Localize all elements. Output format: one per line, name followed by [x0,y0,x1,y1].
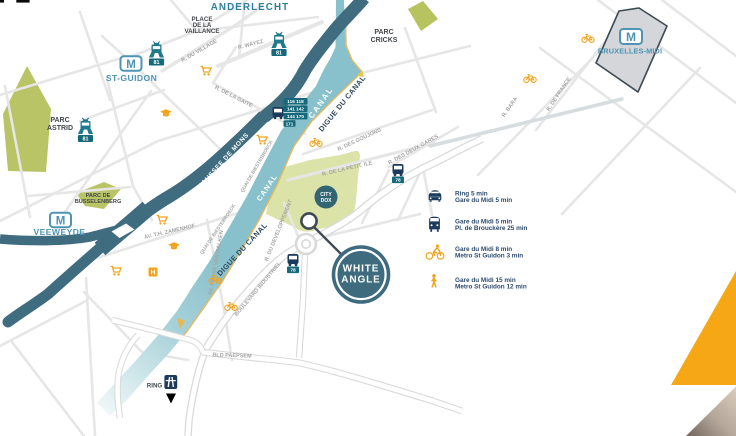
svg-text:ANDERLECHT: ANDERLECHT [211,2,290,13]
svg-text:ANGLE: ANGLE [341,275,381,286]
svg-text:Metro St Guidon 12 min: Metro St Guidon 12 min [455,284,527,291]
svg-text:81: 81 [276,50,282,56]
svg-text:141 142: 141 142 [287,107,304,112]
svg-text:81: 81 [83,136,89,142]
svg-text:Metro St Guidon 3 min: Metro St Guidon 3 min [455,253,523,260]
svg-text:116 118: 116 118 [287,99,304,104]
svg-text:M: M [126,59,136,71]
svg-text:M: M [626,30,636,44]
svg-text:PARC: PARC [374,29,393,36]
svg-text:H: H [150,270,155,277]
svg-text:WHITE: WHITE [343,264,380,275]
svg-text:M: M [56,215,66,227]
svg-text:144 170: 144 170 [287,114,304,119]
svg-text:78: 78 [395,178,401,184]
svg-text:Gare du Midi 5 min: Gare du Midi 5 min [455,197,512,204]
svg-text:CRICKS: CRICKS [371,37,398,44]
svg-text:DOX: DOX [321,198,333,204]
svg-text:VEEWEYDE: VEEWEYDE [34,227,86,237]
svg-text:81: 81 [154,60,160,66]
svg-text:Pl. de Brouckère 25 min: Pl. de Brouckère 25 min [455,225,528,232]
svg-text:ST-GUIDON: ST-GUIDON [106,73,157,83]
svg-text:VAILLANCE: VAILLANCE [185,28,220,35]
svg-text:PARC: PARC [50,117,69,124]
svg-text:RING: RING [147,383,163,390]
svg-text:BRUXELLES-MIDI: BRUXELLES-MIDI [598,47,662,56]
svg-text:171: 171 [286,121,294,126]
svg-text:78: 78 [290,268,296,274]
svg-text:BUSSELENBERG: BUSSELENBERG [75,199,122,205]
svg-text:ASTRID: ASTRID [47,125,73,132]
